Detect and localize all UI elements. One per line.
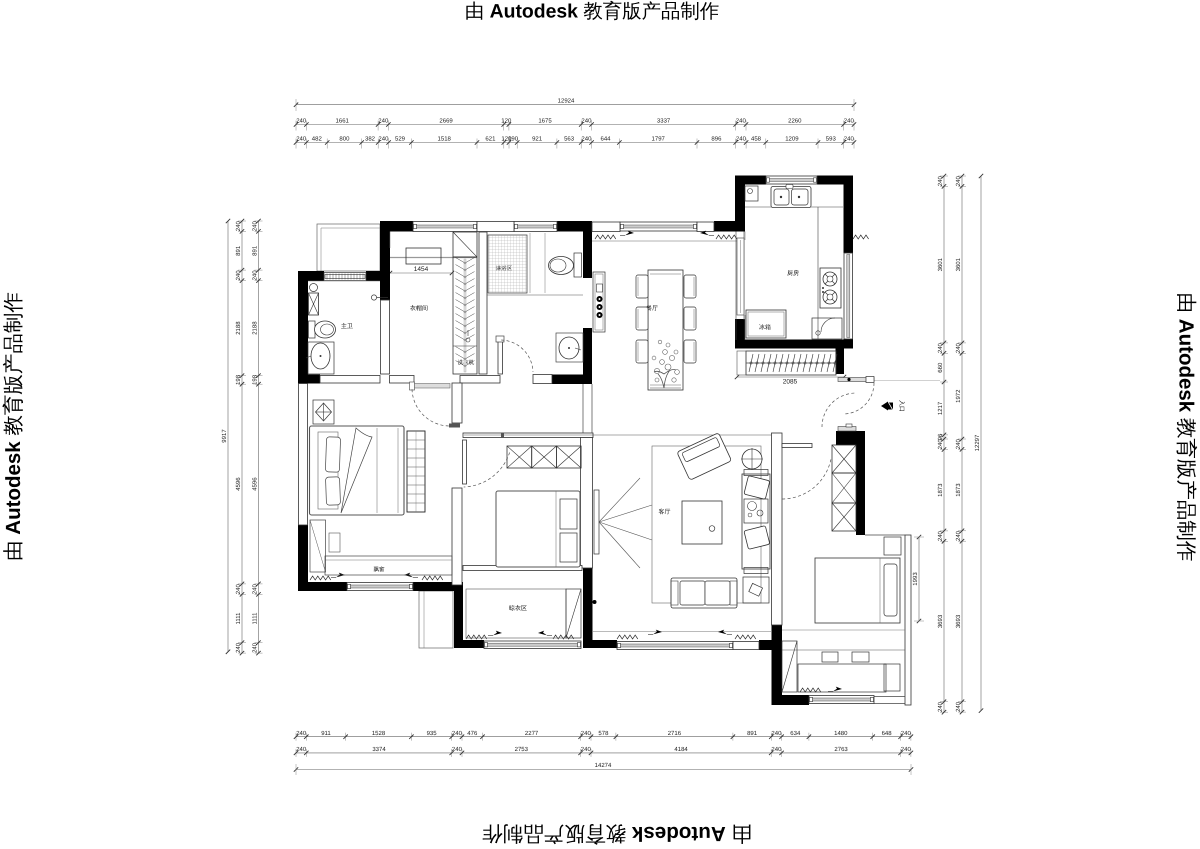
svg-text:240: 240 — [452, 730, 463, 737]
svg-text:240: 240 — [736, 136, 747, 143]
svg-text:4596: 4596 — [235, 477, 242, 491]
svg-text:240: 240 — [955, 701, 962, 712]
svg-text:660: 660 — [937, 362, 944, 373]
svg-text:2085: 2085 — [783, 379, 798, 386]
svg-text:240: 240 — [937, 439, 944, 450]
svg-text:621: 621 — [485, 136, 496, 143]
svg-text:240: 240 — [736, 118, 747, 125]
svg-text:593: 593 — [826, 136, 837, 143]
svg-text:563: 563 — [564, 136, 575, 143]
svg-text:921: 921 — [532, 136, 543, 143]
svg-text:458: 458 — [751, 136, 762, 143]
svg-text:240: 240 — [378, 136, 389, 143]
svg-text:1111: 1111 — [252, 612, 259, 625]
svg-text:9917: 9917 — [221, 429, 228, 443]
svg-text:240: 240 — [235, 221, 242, 232]
svg-text:2716: 2716 — [668, 730, 682, 737]
svg-text:935: 935 — [427, 730, 438, 737]
svg-text:240: 240 — [235, 584, 242, 595]
svg-text:2188: 2188 — [235, 321, 242, 335]
svg-text:240: 240 — [771, 730, 782, 737]
svg-text:800: 800 — [339, 136, 350, 143]
svg-text:1873: 1873 — [955, 483, 962, 497]
svg-text:3693: 3693 — [955, 614, 962, 628]
svg-text:648: 648 — [882, 730, 893, 737]
svg-text:240: 240 — [452, 746, 463, 753]
svg-text:240: 240 — [937, 530, 944, 541]
svg-text:240: 240 — [937, 342, 944, 353]
svg-text:240: 240 — [955, 342, 962, 353]
svg-text:891: 891 — [252, 245, 259, 256]
svg-text:240: 240 — [844, 118, 855, 125]
svg-text:240: 240 — [581, 746, 592, 753]
svg-text:Autodesk: Autodesk — [631, 822, 725, 845]
svg-text:14274: 14274 — [595, 762, 612, 769]
svg-text:240: 240 — [581, 730, 592, 737]
svg-text:644: 644 — [600, 136, 611, 143]
svg-text:1972: 1972 — [955, 389, 962, 403]
svg-text:3374: 3374 — [372, 746, 386, 753]
svg-text:482: 482 — [312, 136, 323, 143]
svg-text:2260: 2260 — [788, 118, 802, 125]
svg-text:1454: 1454 — [414, 266, 429, 273]
svg-text:240: 240 — [937, 176, 944, 187]
svg-text:2763: 2763 — [834, 746, 848, 753]
svg-text:96: 96 — [937, 433, 944, 440]
svg-text:4184: 4184 — [674, 746, 688, 753]
svg-text:240: 240 — [252, 221, 259, 232]
svg-text:1111: 1111 — [235, 612, 242, 625]
svg-text:240: 240 — [252, 270, 259, 281]
svg-text:891: 891 — [747, 730, 758, 737]
svg-text:1797: 1797 — [652, 136, 666, 143]
svg-text:240: 240 — [296, 118, 307, 125]
svg-text:12297: 12297 — [974, 434, 981, 451]
svg-text:190: 190 — [508, 136, 519, 143]
svg-text:4596: 4596 — [252, 477, 259, 491]
svg-text:Autodesk: Autodesk — [490, 0, 579, 22]
svg-text:240: 240 — [901, 746, 912, 753]
svg-text:3601: 3601 — [955, 257, 962, 271]
svg-text:1528: 1528 — [372, 730, 386, 737]
svg-text:476: 476 — [467, 730, 478, 737]
svg-text:1873: 1873 — [937, 483, 944, 497]
svg-text:120: 120 — [501, 118, 512, 125]
svg-text:3601: 3601 — [937, 257, 944, 271]
svg-text:1480: 1480 — [834, 730, 848, 737]
svg-text:896: 896 — [711, 136, 722, 143]
svg-text:634: 634 — [790, 730, 801, 737]
svg-text:1661: 1661 — [336, 118, 350, 125]
svg-text:2188: 2188 — [252, 321, 259, 335]
svg-text:578: 578 — [598, 730, 609, 737]
svg-text:198: 198 — [235, 374, 242, 385]
svg-text:1518: 1518 — [438, 136, 452, 143]
svg-text:1993: 1993 — [912, 572, 919, 586]
svg-text:240: 240 — [252, 642, 259, 653]
svg-text:240: 240 — [235, 642, 242, 653]
svg-text:240: 240 — [296, 746, 307, 753]
svg-text:198: 198 — [252, 374, 259, 385]
svg-text:2669: 2669 — [439, 118, 453, 125]
svg-text:891: 891 — [235, 245, 242, 256]
svg-text:240: 240 — [378, 118, 389, 125]
svg-text:240: 240 — [296, 730, 307, 737]
svg-text:1675: 1675 — [538, 118, 552, 125]
svg-text:240: 240 — [252, 584, 259, 595]
svg-text:12924: 12924 — [558, 98, 575, 105]
svg-text:1209: 1209 — [785, 136, 799, 143]
svg-text:240: 240 — [955, 176, 962, 187]
svg-text:240: 240 — [771, 746, 782, 753]
svg-text:2277: 2277 — [525, 730, 539, 737]
svg-text:240: 240 — [955, 439, 962, 450]
svg-text:240: 240 — [844, 136, 855, 143]
svg-text:382: 382 — [365, 136, 376, 143]
svg-text:Autodesk: Autodesk — [1175, 319, 1198, 413]
svg-text:240: 240 — [581, 136, 592, 143]
svg-text:529: 529 — [395, 136, 406, 143]
svg-text:Autodesk: Autodesk — [2, 441, 25, 535]
svg-text:911: 911 — [321, 730, 331, 737]
svg-text:3337: 3337 — [657, 118, 671, 125]
svg-text:1217: 1217 — [937, 401, 944, 415]
svg-text:240: 240 — [901, 730, 912, 737]
svg-text:240: 240 — [581, 118, 592, 125]
svg-text:240: 240 — [235, 270, 242, 281]
svg-text:240: 240 — [296, 136, 307, 143]
svg-text:240: 240 — [937, 701, 944, 712]
svg-text:3693: 3693 — [937, 614, 944, 628]
svg-text:2753: 2753 — [515, 746, 529, 753]
svg-text:240: 240 — [955, 530, 962, 541]
